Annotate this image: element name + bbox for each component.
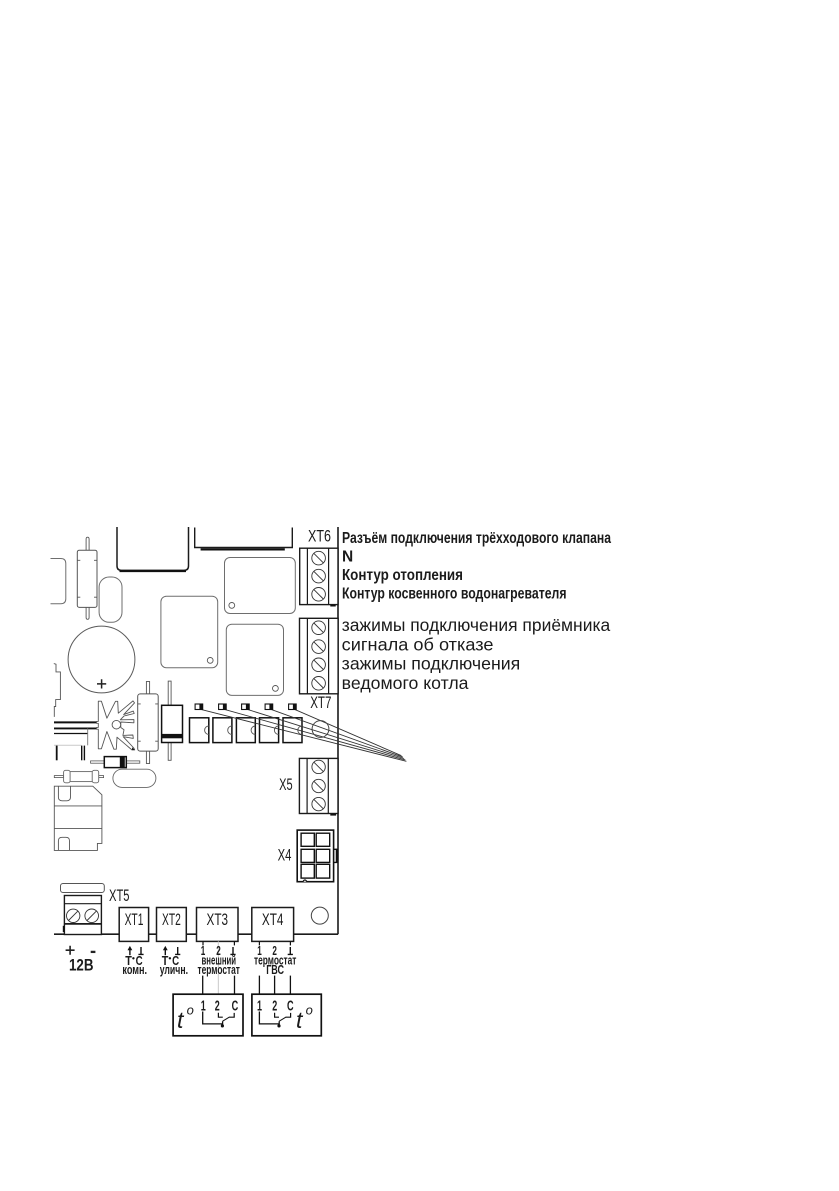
svg-text:XT2: XT2 xyxy=(162,911,181,929)
svg-text:C: C xyxy=(232,999,239,1015)
svg-text:C: C xyxy=(287,999,294,1015)
svg-text:XT6: XT6 xyxy=(308,527,331,545)
svg-text:o: o xyxy=(306,1003,313,1018)
svg-text:2: 2 xyxy=(272,999,277,1015)
svg-text:ГВС: ГВС xyxy=(266,963,284,977)
svg-text:X5: X5 xyxy=(279,776,293,794)
svg-text:XT7: XT7 xyxy=(310,694,331,712)
svg-text:X4: X4 xyxy=(278,846,292,864)
svg-text:сигнала об отказе: сигнала об отказе xyxy=(342,634,494,654)
svg-text:N: N xyxy=(342,548,353,565)
svg-text:2: 2 xyxy=(215,999,220,1015)
svg-text:o: o xyxy=(187,1003,194,1018)
svg-text:комн.: комн. xyxy=(122,963,147,977)
svg-text:ведомого котла: ведомого котла xyxy=(342,673,469,693)
svg-text:зажимы подключения приёмника: зажимы подключения приёмника xyxy=(342,615,611,635)
svg-text:XT5: XT5 xyxy=(109,887,130,905)
svg-text:XT3: XT3 xyxy=(207,911,229,929)
svg-text:уличн.: уличн. xyxy=(160,963,188,977)
svg-text:XT1: XT1 xyxy=(125,911,144,929)
svg-text:Контур косвенного водонагреват: Контур косвенного водонагревателя xyxy=(342,585,567,602)
svg-text:12В: 12В xyxy=(69,956,94,975)
svg-text:Контур отопления: Контур отопления xyxy=(342,567,463,584)
svg-text:термостат: термостат xyxy=(198,963,240,977)
svg-text:зажимы подключения: зажимы подключения xyxy=(342,654,521,674)
svg-text:XT4: XT4 xyxy=(262,911,284,929)
svg-text:Разъём подключения трёхходовог: Разъём подключения трёхходового клапана xyxy=(342,530,611,547)
